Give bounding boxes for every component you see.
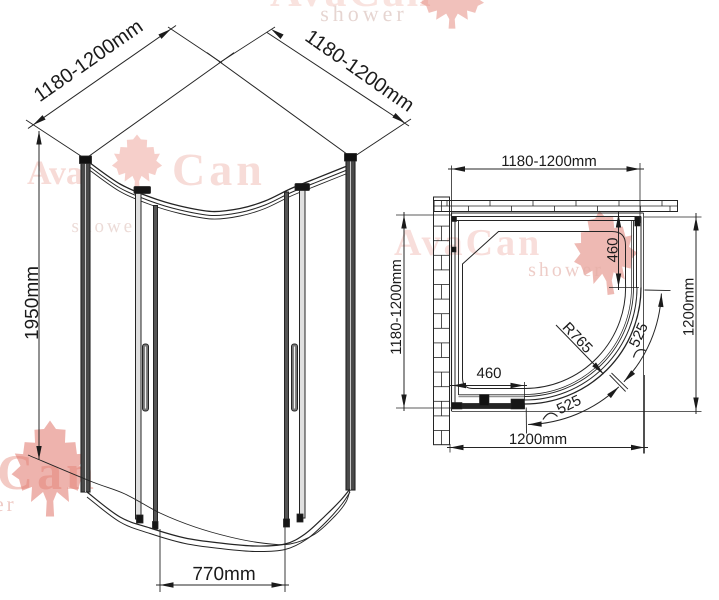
svg-text:1950mm: 1950mm <box>22 266 43 340</box>
svg-text:460: 460 <box>476 365 501 382</box>
svg-text:shower: shower <box>528 259 604 281</box>
svg-text:1180-1200mm: 1180-1200mm <box>388 259 405 355</box>
svg-text:Can: Can <box>172 144 266 195</box>
svg-text:1180-1200mm: 1180-1200mm <box>30 16 147 107</box>
svg-text:460: 460 <box>605 237 622 262</box>
svg-text:1200mm: 1200mm <box>509 431 567 448</box>
svg-text:1200mm: 1200mm <box>681 278 698 336</box>
svg-text:525: 525 <box>554 392 584 418</box>
svg-text:AvaCan: AvaCan <box>394 222 542 264</box>
svg-text:shower: shower <box>0 492 17 516</box>
svg-text:1180-1200mm: 1180-1200mm <box>301 26 418 117</box>
svg-text:525: 525 <box>626 320 652 350</box>
svg-text:Ava: Ava <box>27 155 83 192</box>
svg-text:770mm: 770mm <box>192 564 255 585</box>
svg-text:1180-1200mm: 1180-1200mm <box>501 153 597 170</box>
svg-text:R765: R765 <box>559 319 596 357</box>
svg-text:shower: shower <box>320 1 408 26</box>
